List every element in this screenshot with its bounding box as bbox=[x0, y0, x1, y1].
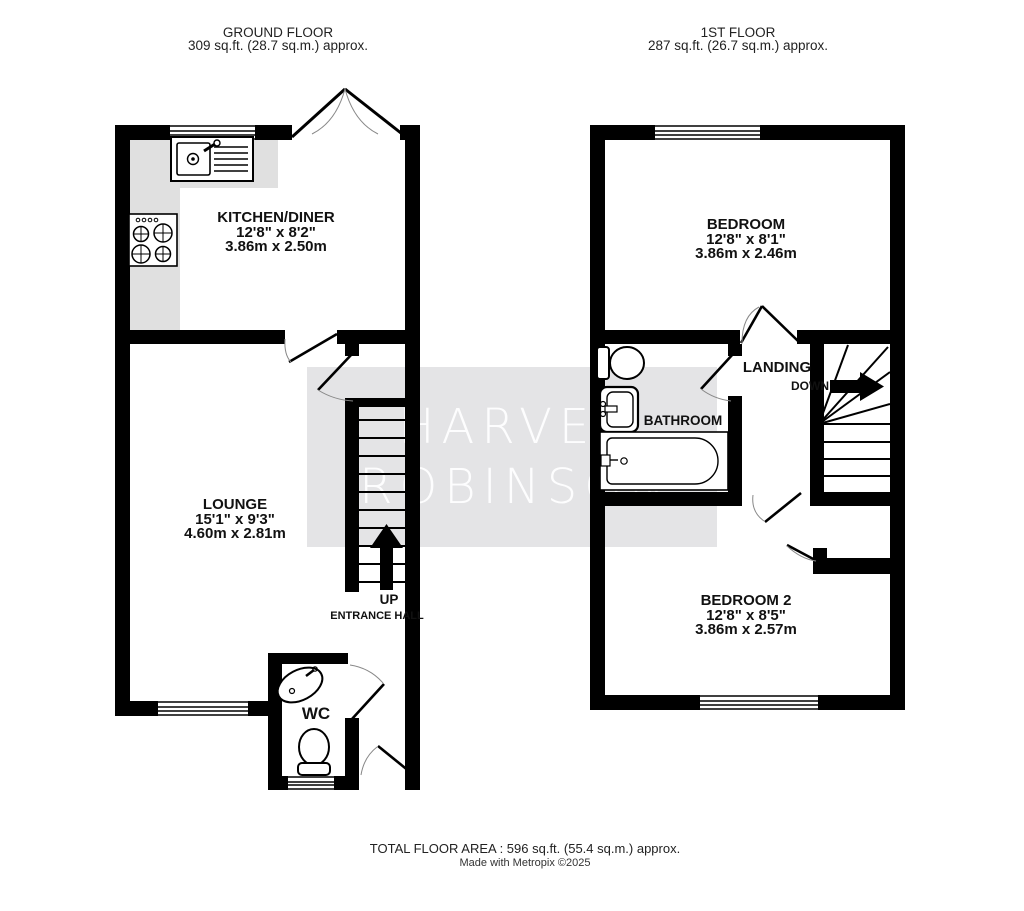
down-label: DOWN bbox=[791, 379, 829, 393]
first-floor-header: 1ST FLOOR 287 sq.ft. (26.7 sq.m.) approx… bbox=[648, 26, 828, 52]
stove bbox=[129, 214, 177, 266]
floorplan-drawing bbox=[0, 0, 1024, 911]
first-stairs bbox=[819, 345, 890, 476]
lounge-label: LOUNGE 15'1" x 9'3" 4.60m x 2.81m bbox=[184, 498, 286, 542]
ground-floor-area: 309 sq.ft. (28.7 sq.m.) approx. bbox=[188, 39, 368, 52]
lounge-window bbox=[158, 701, 248, 716]
bedroom-label: BEDROOM 12'8" x 8'1" 3.86m x 2.46m bbox=[695, 218, 797, 262]
total-floor-area: TOTAL FLOOR AREA : 596 sq.ft. (55.4 sq.m… bbox=[370, 841, 680, 856]
up-label: UP bbox=[380, 592, 399, 607]
bedroom-window bbox=[655, 125, 760, 140]
metropix-credit: Made with Metropix ©2025 bbox=[459, 857, 590, 869]
kitchen-label: KITCHEN/DINER 12'8" x 8'2" 3.86m x 2.50m bbox=[217, 211, 335, 255]
first-floor-area: 287 sq.ft. (26.7 sq.m.) approx. bbox=[648, 39, 828, 52]
up-arrow bbox=[370, 524, 403, 590]
ground-floor-header: GROUND FLOOR 309 sq.ft. (28.7 sq.m.) app… bbox=[188, 26, 368, 52]
bathroom-label: BATHROOM bbox=[644, 413, 723, 428]
wc-toilet bbox=[298, 729, 330, 775]
wc-window bbox=[288, 776, 334, 790]
bathroom-sink bbox=[600, 387, 638, 432]
ground-floor-plan bbox=[115, 89, 420, 790]
bedroom2-window bbox=[700, 695, 818, 710]
wc-label: WC bbox=[302, 704, 330, 724]
bathtub bbox=[600, 432, 728, 490]
entrance-hall-label: ENTRANCE HALL bbox=[330, 610, 424, 622]
bedroom2-label: BEDROOM 2 12'8" x 8'5" 3.86m x 2.57m bbox=[695, 594, 797, 638]
kitchen-sink bbox=[171, 137, 253, 181]
ground-stairs bbox=[359, 420, 405, 590]
french-doors bbox=[292, 89, 406, 137]
bathroom-toilet bbox=[597, 347, 644, 379]
floorplan-page: HARVEY ROBINSON bbox=[0, 0, 1024, 911]
landing-label: LANDING bbox=[743, 359, 811, 376]
